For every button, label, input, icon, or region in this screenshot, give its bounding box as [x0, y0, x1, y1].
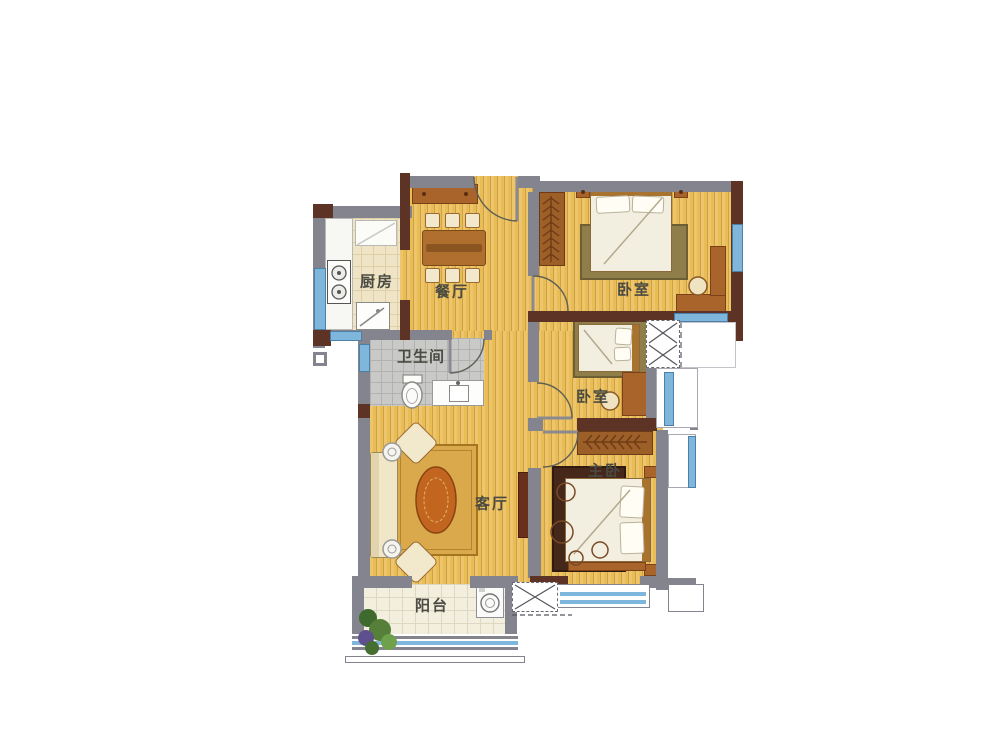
dining-chair — [465, 213, 480, 228]
rug-inner-border — [400, 450, 472, 550]
glazing-rail — [352, 636, 518, 639]
dining-table — [422, 230, 486, 266]
flue-shaft — [646, 320, 680, 368]
desk-bedroom-top — [676, 294, 726, 312]
sofa — [370, 452, 398, 558]
room-label-bedroom-middle: 卧室 — [576, 386, 610, 407]
wall-segment — [410, 176, 474, 188]
duct-bottom — [512, 582, 558, 612]
corner-ac-box — [668, 584, 704, 612]
pillow — [619, 485, 645, 518]
exterior-stub — [313, 352, 327, 366]
room-label-bathroom: 卫生间 — [397, 346, 445, 367]
glazing-glass — [352, 641, 518, 645]
window-kitchen-bottom — [330, 331, 362, 341]
wall-segment — [533, 181, 743, 192]
fridge — [355, 220, 397, 246]
wardrobe-master — [577, 431, 653, 455]
window-master-bay — [688, 436, 696, 488]
balcony-glazing — [352, 634, 518, 656]
light-well — [680, 322, 736, 368]
wall-segment-brown — [577, 418, 657, 431]
window-bedroom-top-right — [732, 224, 743, 272]
wall-segment — [656, 430, 668, 580]
room-label-bedroom-top: 卧室 — [617, 279, 651, 300]
room-label-master: 主卧 — [588, 460, 622, 481]
washing-machine — [476, 584, 504, 618]
window-ac-platform — [664, 372, 674, 426]
window-bedroom-top-bottom — [674, 313, 728, 322]
window-kitchen-left — [314, 268, 326, 330]
bed-headboard — [632, 325, 639, 371]
dining-chair — [445, 213, 460, 228]
wall-segment-brown — [400, 173, 410, 250]
pillow — [614, 327, 632, 345]
window-master-bottom — [560, 592, 646, 596]
dining-table-grain — [426, 244, 482, 252]
window-bathroom — [359, 344, 370, 372]
stove — [327, 260, 351, 304]
room-label-living: 客厅 — [475, 493, 509, 514]
wall-segment — [528, 322, 539, 382]
rug-living-room — [394, 444, 478, 556]
wall-segment — [528, 192, 539, 276]
floorplan-canvas: 厨房 餐厅 卧室 卫生间 卧室 客厅 主卧 阳台 — [0, 0, 1000, 750]
master-bottom-window-sill — [556, 584, 650, 608]
sofa-back — [371, 453, 379, 557]
desk-bedroom-top-side — [710, 246, 726, 296]
wardrobe-bedroom-top — [539, 192, 565, 266]
pillow — [632, 195, 665, 213]
wall-segment — [528, 468, 541, 578]
wall-segment-brown — [313, 204, 333, 218]
wall-segment — [484, 330, 492, 340]
wall-segment-brown — [313, 330, 331, 346]
pillow — [596, 195, 631, 214]
window-master-bottom — [560, 600, 646, 604]
dining-chair — [425, 213, 440, 228]
room-label-dining: 餐厅 — [435, 281, 469, 302]
room-label-kitchen: 厨房 — [360, 271, 394, 292]
pillow — [619, 522, 644, 555]
room-label-balcony: 阳台 — [415, 595, 449, 616]
wall-segment — [528, 418, 543, 431]
desk-bedroom-middle — [622, 372, 648, 416]
pillow — [614, 347, 632, 362]
bed-end-bench — [568, 562, 646, 571]
wall-segment — [358, 576, 412, 588]
vanity-sink — [449, 385, 469, 402]
bathroom-vanity — [432, 380, 484, 406]
kitchen-sink — [356, 302, 390, 330]
wall-segment-brown — [400, 300, 410, 340]
wall-segment — [358, 340, 370, 586]
glazing-rail — [352, 647, 518, 650]
balcony-sill — [345, 656, 525, 663]
wall-segment-brown — [358, 404, 370, 418]
ac-platform — [656, 368, 698, 428]
